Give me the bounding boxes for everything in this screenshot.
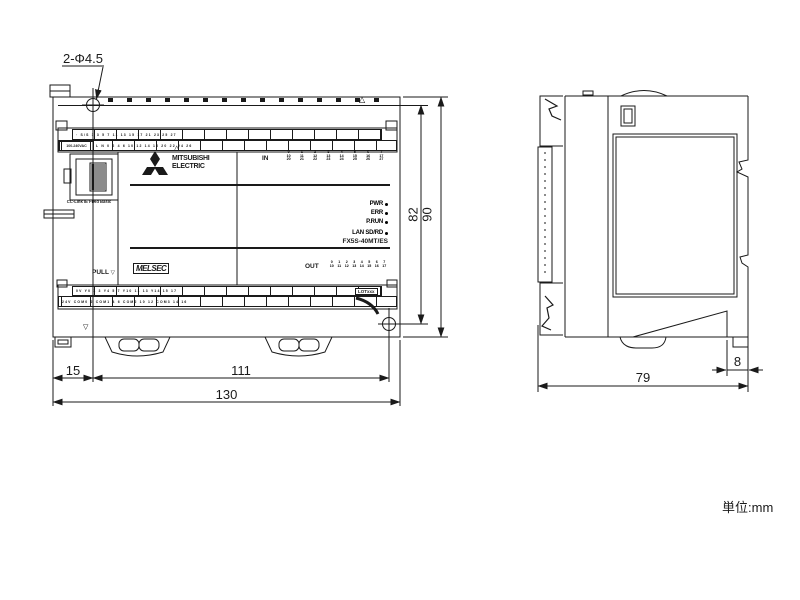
out-col: 2 12 [343, 261, 351, 281]
dim-82-label: 82 [406, 201, 421, 229]
out-col: 7 17 [381, 261, 389, 281]
unit-label: 単位:mm [722, 497, 773, 516]
mitsubishi-logo-icon [142, 150, 168, 178]
dim-130-label: 130 [53, 387, 400, 402]
din-lever [633, 311, 727, 337]
out-col: 5 15 [366, 261, 374, 281]
out-col: 3 13 [351, 261, 359, 281]
out-label: OUT [305, 263, 319, 270]
led-dot [385, 212, 388, 215]
in-col: 7 17 27 [375, 151, 388, 181]
in-col: 6 16 26 [362, 151, 375, 181]
dim-90-label: 90 [420, 201, 435, 229]
side-right-edge [737, 96, 748, 337]
ref-mark-bottom: ▽ [83, 324, 88, 332]
pull-label: PULL ▽ [92, 269, 115, 276]
lot-label: LOTxxx [355, 288, 378, 295]
led-label-lan: LAN SD/RD [352, 230, 383, 236]
pull-triangle: ▽ [111, 270, 115, 276]
dimensional-drawing: 2-Φ4.5 △ △ ▽ · S/S 1 3 5 7 11 13 15 17 2… [0, 0, 800, 600]
dim-8-label: 8 [727, 354, 748, 369]
power-rating-label: 100-240VAC [59, 141, 94, 151]
top-cover-clip [540, 96, 563, 146]
in-col: 3 13 23 [322, 151, 335, 181]
dim-79-label: 79 [538, 370, 748, 385]
din-clip-right [265, 337, 332, 356]
in-col: 4 14 24 [335, 151, 348, 181]
led-label-prun: P.RUN [366, 219, 383, 225]
in-col: 0 10 20 [282, 151, 295, 181]
vent-slots [108, 98, 390, 102]
in-col: 1 11 21 [295, 151, 308, 181]
status-led-row: ERR [248, 209, 388, 217]
melsec-logo: MELSEC [133, 263, 169, 274]
side-view [538, 91, 748, 349]
in-label: IN [262, 155, 269, 162]
bottom-terminal-row2-labels: 24V COM0 2 COM1 4 6 COM2 10 12 COM3 14 1… [62, 300, 392, 304]
side-panel [613, 134, 737, 297]
led-dot [385, 221, 388, 224]
hole-note: 2-Φ4.5 [63, 51, 103, 66]
top-handle-bump [621, 91, 667, 97]
led-label-pwr: PWR [370, 201, 383, 207]
status-led-row: P.RUN [248, 218, 388, 226]
led-dot [385, 232, 388, 235]
dim-111-label: 111 [93, 363, 389, 378]
bottom-bump [620, 337, 666, 348]
hole-note-leader [97, 67, 104, 99]
top-terminal-row1-labels: · S/S 1 3 5 7 11 13 15 17 21 23 25 27 [76, 133, 380, 137]
out-col: 0 10 [328, 261, 336, 281]
out-col: 1 11 [336, 261, 344, 281]
dim-15-label: 15 [53, 363, 93, 378]
status-led-row: PWR [248, 200, 388, 208]
status-led-row: LAN SD/RD [248, 229, 388, 237]
top-terminal-row2-labels: L N 0 2 4 6 10 12 14 16 20 22 24 26 [96, 144, 394, 148]
in-led-columns: 0 10 20 1 11 21 2 12 22 3 13 23 4 14 24 … [282, 151, 388, 181]
model-label: FX5S-40MT/ES [248, 238, 388, 245]
bottom-terminal-row1-labels: 0V Y0 1 3 Y4 5 7 Y10 11 13 Y14 15 17 [76, 289, 352, 293]
in-col: 5 15 25 [348, 151, 361, 181]
port-label: CC-Link IE Field Basic [54, 199, 124, 204]
out-col: 6 16 [373, 261, 381, 281]
brand-line2: ELECTRIC [172, 163, 209, 171]
ethernet-port [64, 154, 118, 200]
out-col: 4 14 [358, 261, 366, 281]
brand-line1: MITSUBISHI [172, 155, 209, 163]
led-label-err: ERR [371, 210, 383, 216]
side-foot [733, 337, 748, 347]
din-clip-left [105, 337, 170, 356]
bottom-left-tab [55, 337, 71, 347]
ref-mark-top: △ [359, 96, 365, 104]
brand-text: MITSUBISHI ELECTRIC [172, 155, 209, 171]
led-dot [385, 203, 388, 206]
in-col: 2 12 22 [309, 151, 322, 181]
out-led-columns: 0 10 1 11 2 12 3 13 4 14 5 15 6 16 7 17 [328, 261, 388, 281]
